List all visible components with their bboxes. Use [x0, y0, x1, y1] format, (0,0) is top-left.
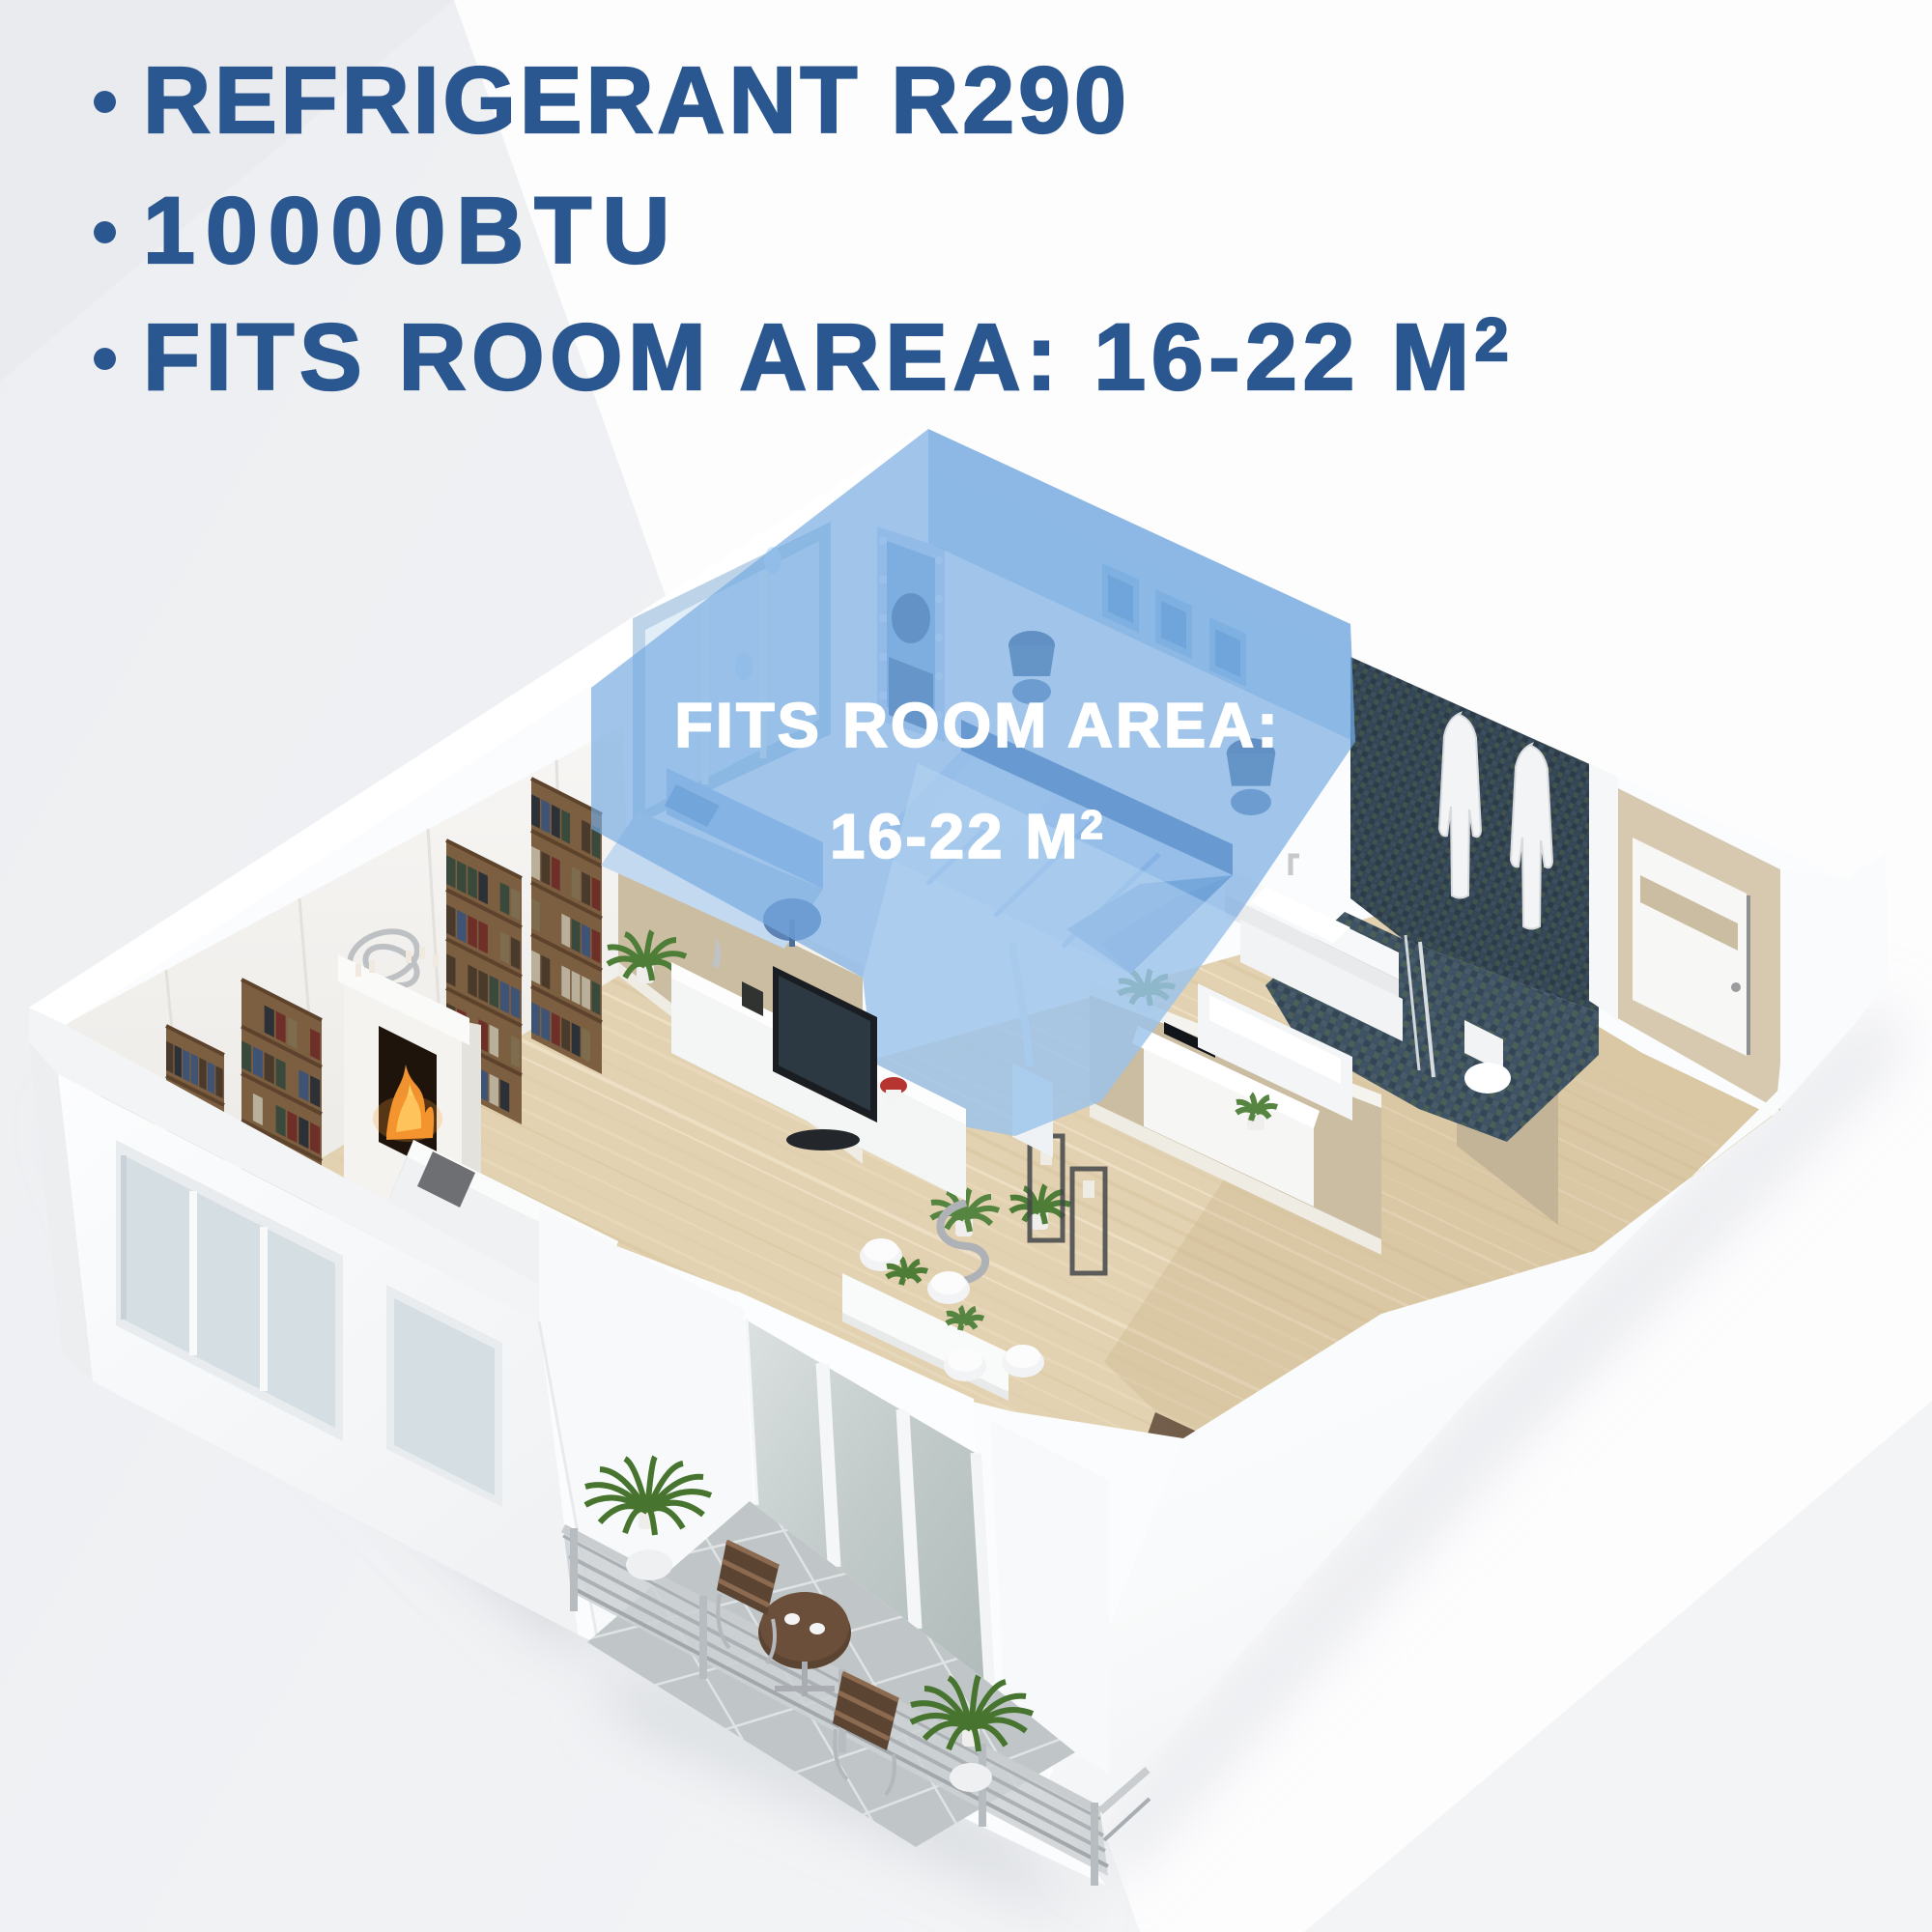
svg-text:16-22 M2: 16-22 M2 [830, 801, 1106, 871]
svg-text:FITS ROOM AREA:: FITS ROOM AREA: [674, 690, 1281, 760]
